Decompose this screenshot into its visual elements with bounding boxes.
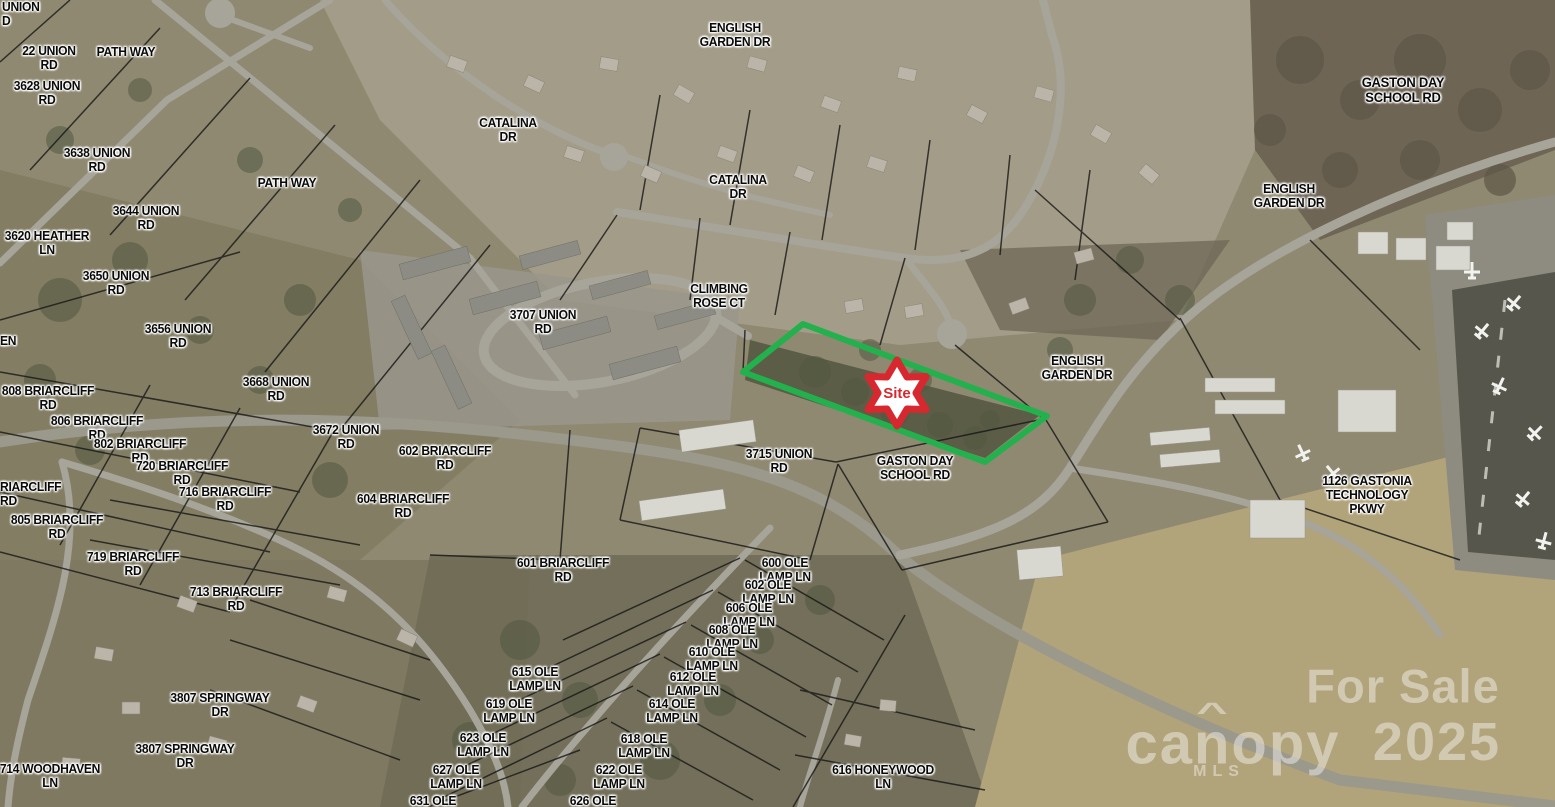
aerial-map: Site UNION D22 UNION RDPATH WAY3628 UNIO… [0, 0, 1555, 807]
mls-logo-text: MLS [1193, 763, 1245, 781]
site-marker-label: Site [883, 385, 911, 402]
canopy-roof-icon: ^ [1196, 697, 1228, 728]
for-sale-watermark: For Sale [1306, 659, 1499, 714]
year-watermark: 2025 [1373, 711, 1501, 773]
